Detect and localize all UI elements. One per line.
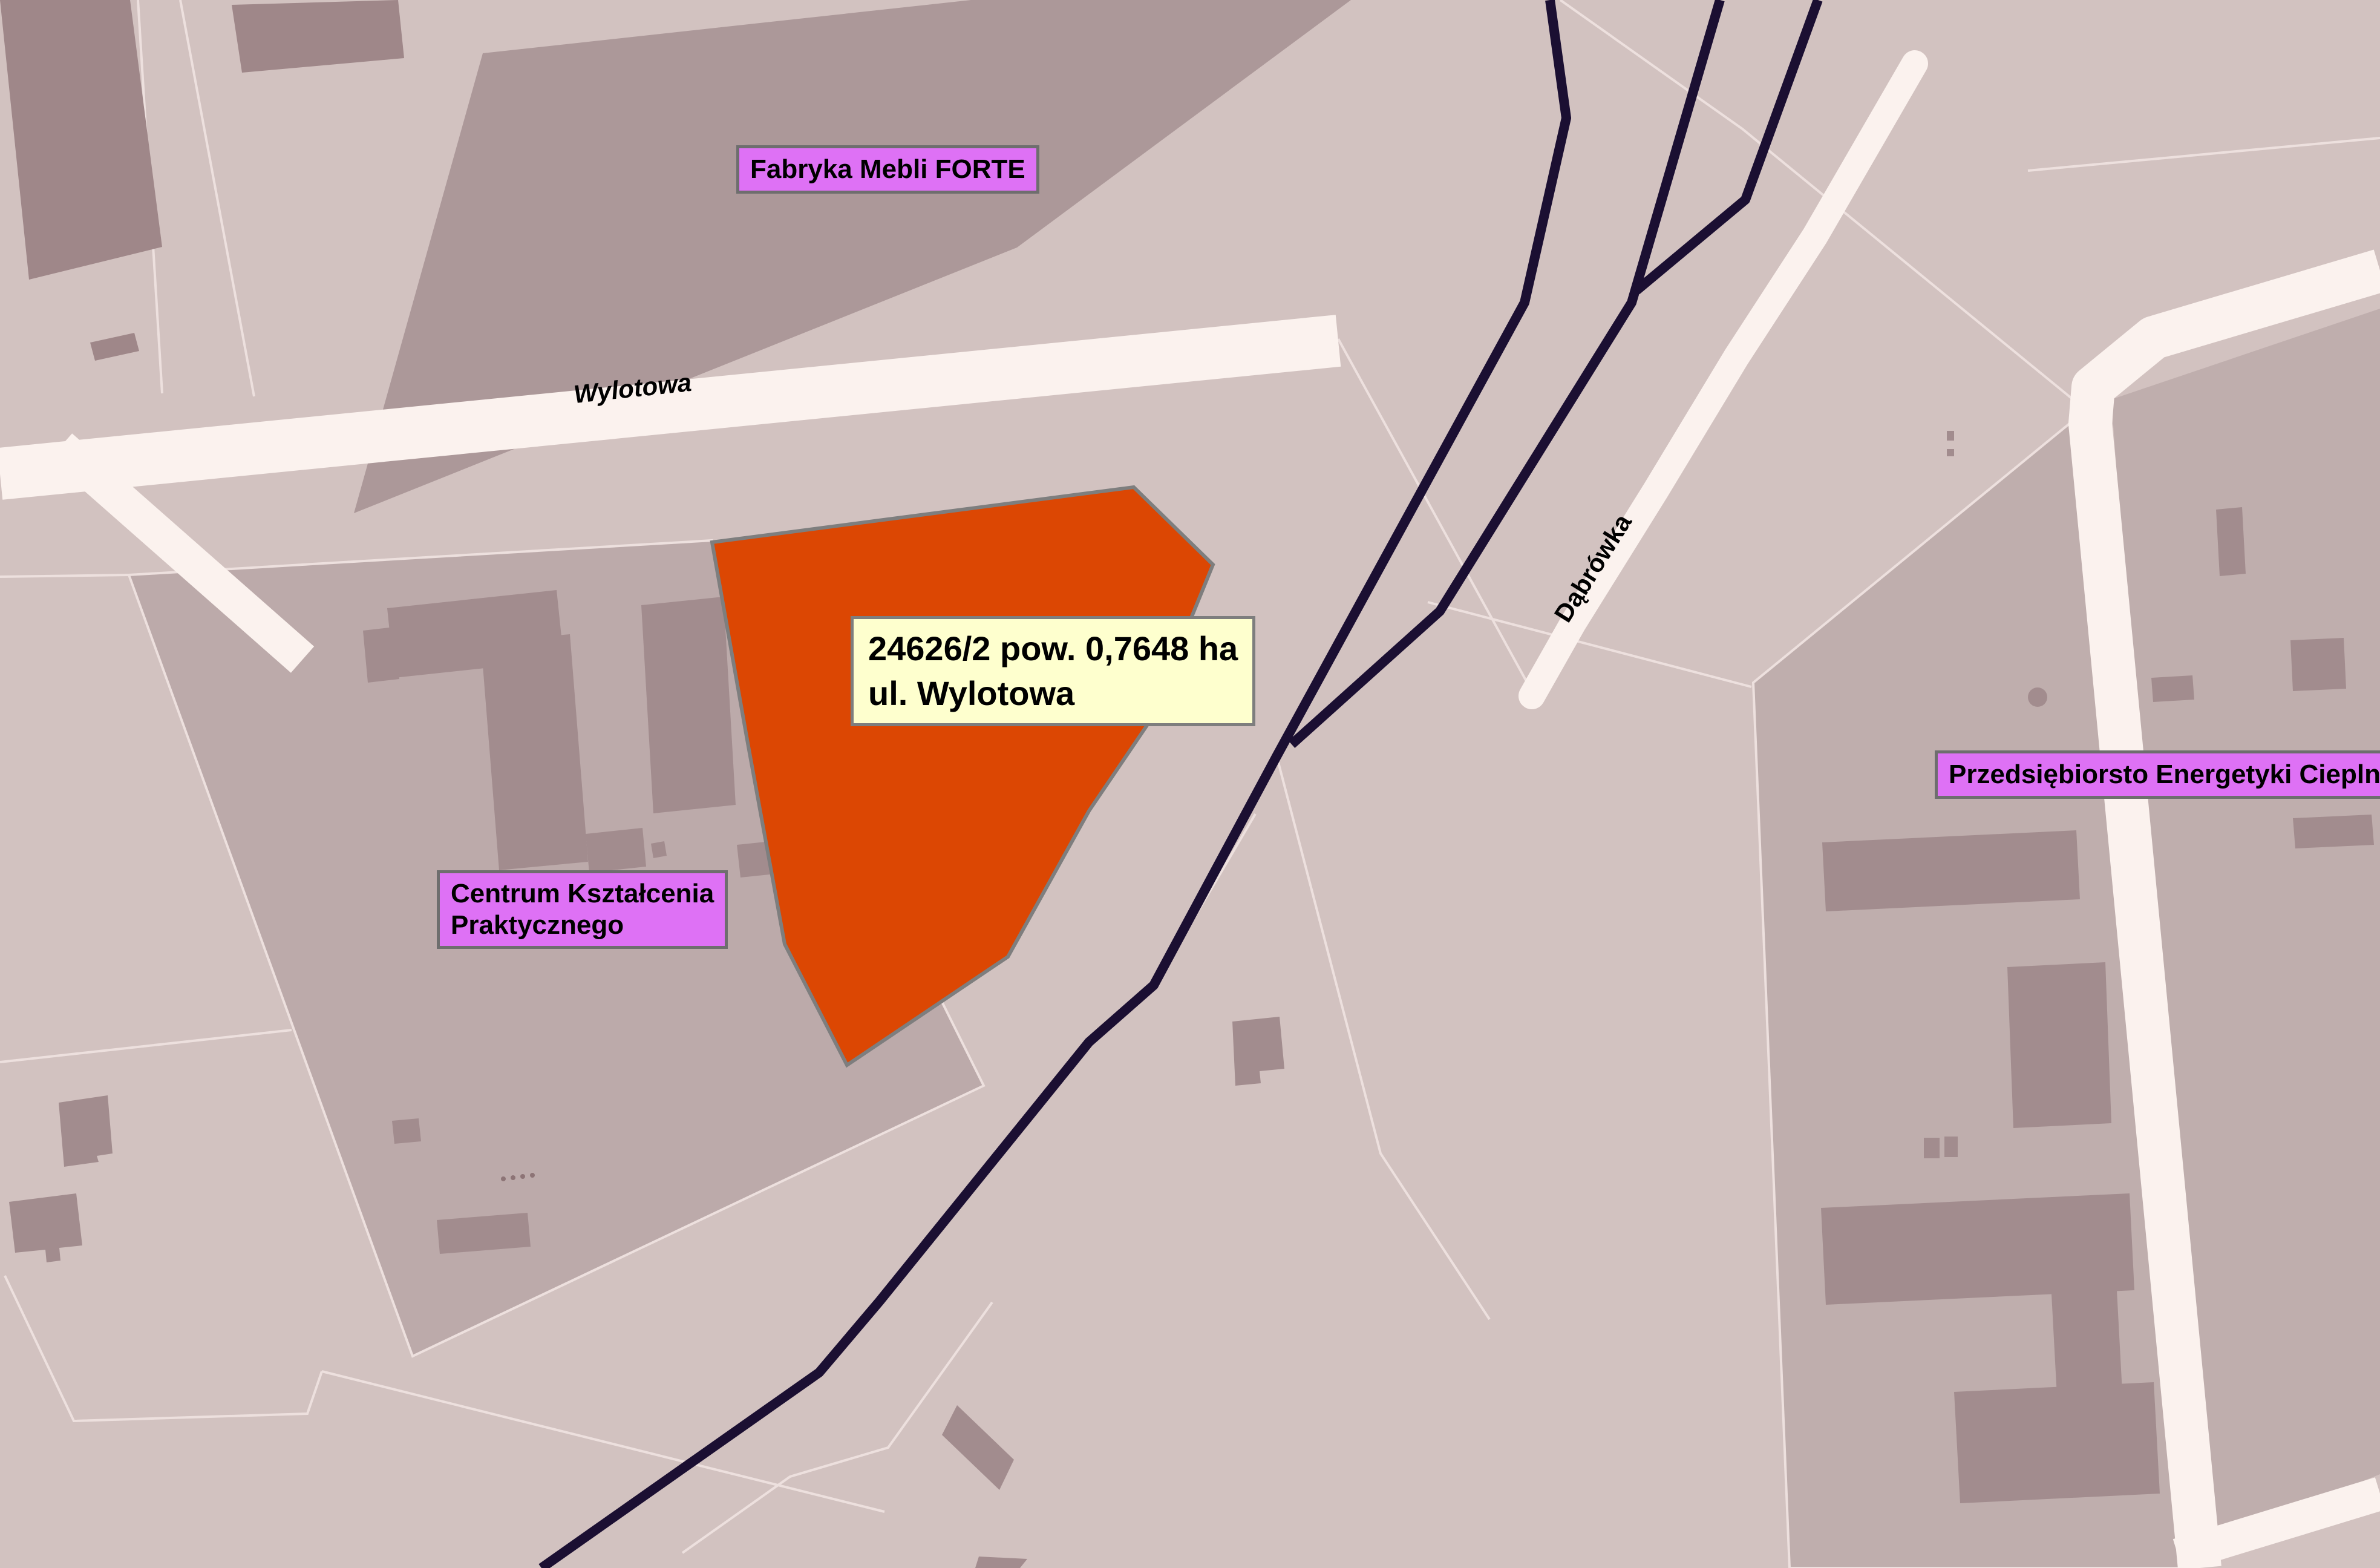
building <box>1947 449 1954 456</box>
dot <box>530 1173 535 1178</box>
building <box>651 841 667 858</box>
dot <box>511 1175 515 1180</box>
parcel-info-line1: 24626/2 pow. 0,7648 ha <box>868 629 1238 668</box>
parcel-info-line2: ul. Wylotowa <box>868 674 1074 712</box>
label-text: Przedsiębiorsto Energetyki Cieplnej <box>1949 759 2380 789</box>
building <box>586 828 646 873</box>
building <box>2290 638 2346 691</box>
label-text-line2: Praktycznego <box>451 910 624 940</box>
building <box>641 597 736 813</box>
building <box>2293 815 2374 848</box>
building <box>1954 1382 2160 1503</box>
label-przedsiebiorstwo-energetyki[interactable]: Przedsiębiorsto Energetyki Cieplnej <box>1935 750 2380 799</box>
label-text-line1: Centrum Kształcenia <box>451 879 714 908</box>
tank-building <box>2028 687 2047 707</box>
map-view: { "labels": { "forte": "Fabryka Mebli FO… <box>0 0 2380 1568</box>
building <box>1944 1137 1958 1157</box>
building <box>363 627 399 683</box>
building <box>481 634 588 870</box>
building <box>392 1118 421 1144</box>
building <box>1822 830 2080 911</box>
label-centrum-ksztalcenia[interactable]: Centrum Kształcenia Praktycznego <box>437 870 728 949</box>
building <box>2151 675 2194 702</box>
building <box>2051 1279 2122 1396</box>
dot <box>501 1176 506 1181</box>
building <box>2007 962 2111 1128</box>
building <box>437 1213 531 1254</box>
dot <box>520 1174 525 1179</box>
parcel-info-box[interactable]: 24626/2 pow. 0,7648 ha ul. Wylotowa <box>851 616 1255 726</box>
label-text: Fabryka Mebli FORTE <box>750 154 1025 184</box>
building <box>2216 507 2246 576</box>
building <box>1924 1138 1940 1158</box>
building <box>1947 431 1954 441</box>
label-fabryka-mebli-forte[interactable]: Fabryka Mebli FORTE <box>736 145 1039 194</box>
